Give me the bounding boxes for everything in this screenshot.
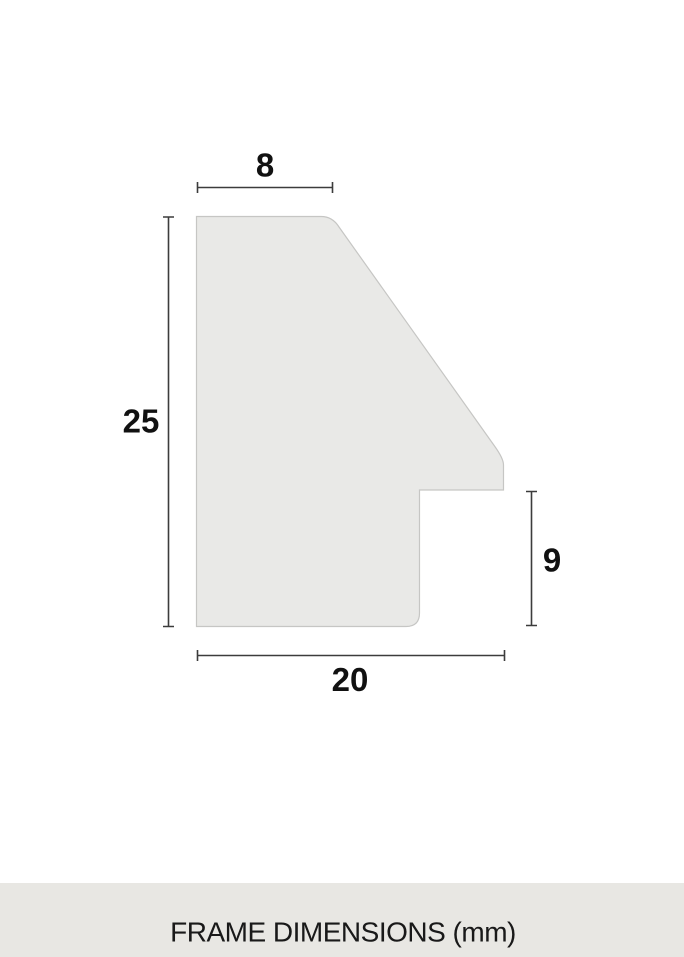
svg-text:FRAME DIMENSIONS (mm): FRAME DIMENSIONS (mm): [170, 917, 516, 948]
